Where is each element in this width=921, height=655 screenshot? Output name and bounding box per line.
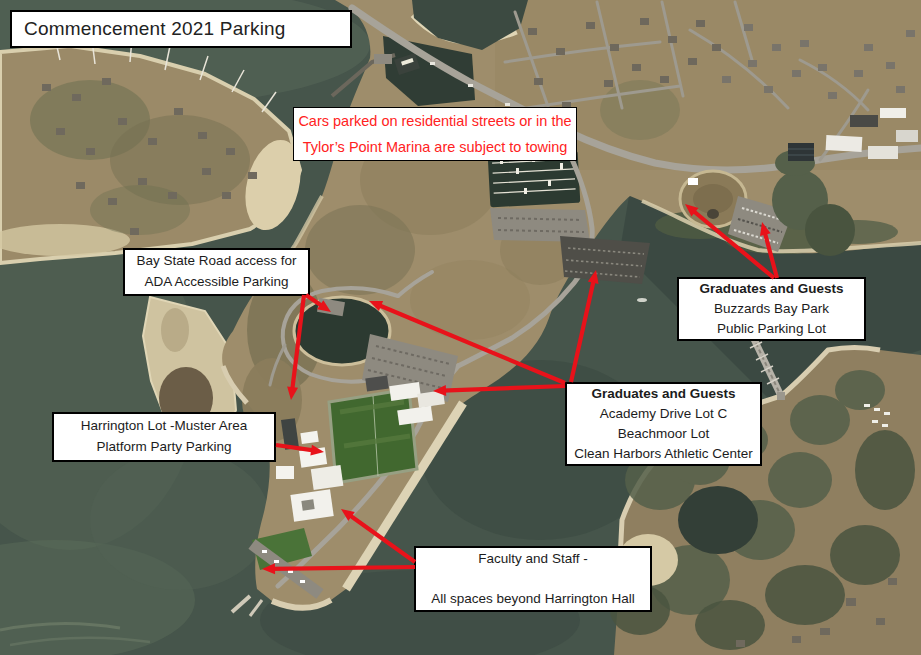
label-line: Platform Party Parking: [96, 437, 231, 458]
label-line: Academy Drive Lot C: [600, 404, 728, 424]
towing-warning: Cars parked on residential streets or in…: [293, 107, 577, 161]
label-line: Clean Harbors Athletic Center: [574, 444, 753, 464]
label-line: Graduates and Guests: [699, 279, 843, 299]
label-harrington-lot: Harrington Lot -Muster AreaPlatform Part…: [52, 412, 276, 462]
label-line: Public Parking Lot: [717, 319, 826, 339]
label-line: Tylor’s Point Marina are subject to towi…: [303, 134, 568, 160]
label-line: Beachmoor Lot: [618, 424, 710, 444]
label-academy-drive: Graduates and GuestsAcademy Drive Lot CB…: [565, 382, 762, 466]
label-line: All spaces beyond Harrington Hall: [431, 589, 634, 610]
label-faculty-staff: Faculty and Staff -All spaces beyond Har…: [414, 546, 652, 612]
label-line: Harrington Lot -Muster Area: [81, 416, 248, 437]
label-line: Cars parked on residential streets or in…: [298, 108, 571, 134]
label-line: Buzzards Bay Park: [714, 299, 829, 319]
label-line: ADA Accessible Parking: [144, 272, 288, 293]
label-line: Bay State Road access for: [137, 251, 297, 272]
label-line: Graduates and Guests: [591, 384, 735, 404]
label-line: Faculty and Staff -: [478, 549, 587, 570]
label-buzzards-bay-park: Graduates and GuestsBuzzards Bay ParkPub…: [677, 277, 866, 341]
label-bay-state-road: Bay State Road access forADA Accessible …: [123, 248, 310, 296]
annotation-layer: Cars parked on residential streets or in…: [0, 0, 921, 655]
